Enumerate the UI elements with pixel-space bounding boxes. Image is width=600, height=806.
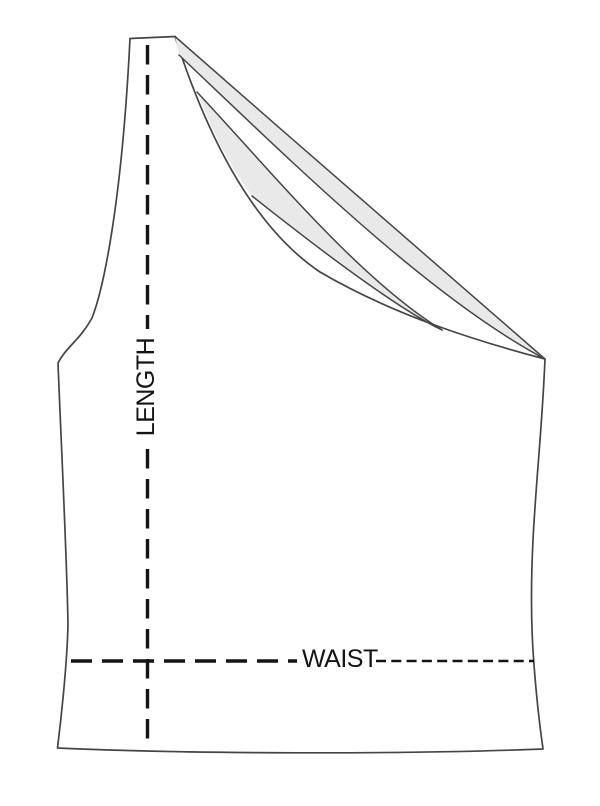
length-label: LENGTH [132,338,160,436]
shoulder-strap-outer-top-edge [175,37,545,360]
shoulder-strap-inner-top-edge [197,92,442,330]
garment-diagram-svg: LENGTH WAIST [0,0,600,806]
waist-label: WAIST [302,645,378,673]
size-guide-diagram: LENGTH WAIST [0,0,600,806]
shoulder-strap-inner [197,92,442,330]
